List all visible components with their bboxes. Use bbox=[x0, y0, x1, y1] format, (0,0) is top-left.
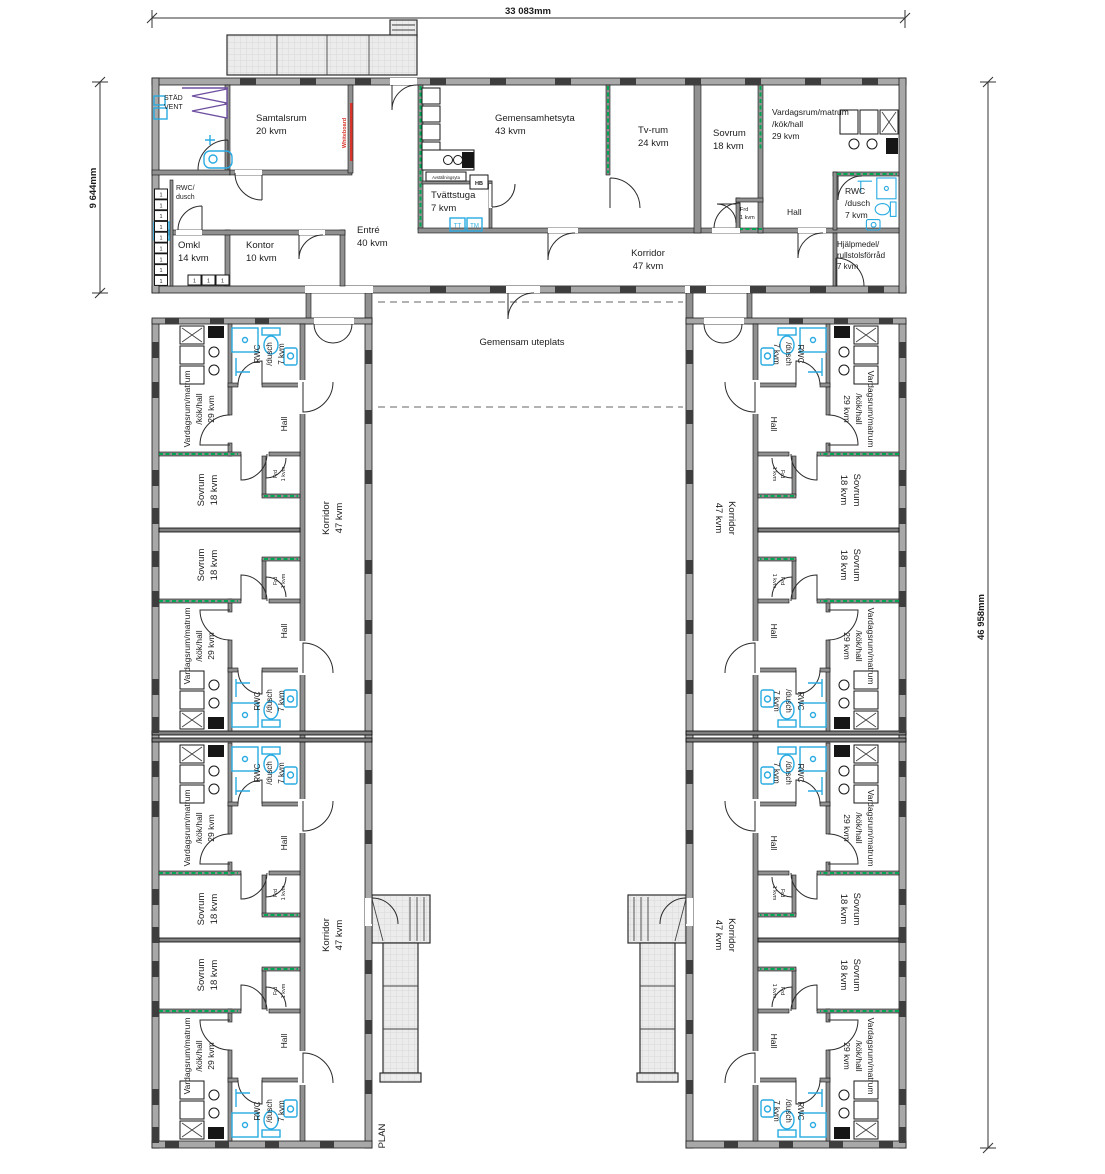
room-frd-top-label: Frd bbox=[740, 207, 748, 213]
whiteboard-label: Whiteboard bbox=[342, 118, 348, 148]
room-vardagsrum-top-label: Vardagsrum/matrum bbox=[772, 107, 849, 117]
room-sovrum-label: Sovrum bbox=[851, 474, 862, 507]
room-sovrum-label: Sovrum bbox=[196, 959, 207, 992]
apartment-R-743: Vardagsrum/matrum/kök/hall29 kvmRWC/dusc… bbox=[725, 743, 899, 925]
window-marker bbox=[240, 78, 256, 85]
wall bbox=[826, 387, 830, 415]
room-kontor-label: Kontor bbox=[246, 240, 274, 251]
room-rwc-label2: /dusch bbox=[784, 1099, 793, 1123]
room-vardagsrum-area: 29 kvm bbox=[842, 632, 852, 659]
window-marker bbox=[724, 1141, 738, 1148]
window-marker bbox=[152, 801, 159, 817]
room-sovrum-label: Sovrum bbox=[196, 893, 207, 926]
wall bbox=[262, 1078, 300, 1082]
wall bbox=[758, 668, 796, 672]
window-marker bbox=[255, 318, 269, 324]
hb-appliance-label: HB bbox=[475, 181, 483, 187]
wall bbox=[820, 668, 830, 672]
room-vardagsrum-top-area: 29 kvm bbox=[772, 131, 799, 141]
window-marker bbox=[686, 410, 693, 424]
stair-step-number: 1 bbox=[159, 203, 162, 209]
room-rwc-entre-label: RWC/ bbox=[176, 185, 195, 192]
door-gap bbox=[752, 799, 760, 833]
room-vardagsrum-area: 29 kvm bbox=[842, 814, 852, 841]
room-vardagsrum-area: 29 kvm bbox=[842, 1042, 852, 1069]
room-rwc-area: 7 kvm bbox=[277, 690, 286, 712]
window-marker bbox=[152, 1001, 159, 1017]
room-gemensamhetsyta-label: Gemensamhetsyta bbox=[495, 113, 575, 124]
door-arc bbox=[303, 643, 333, 673]
room-vardagsrum-label: Vardagsrum/matrum bbox=[866, 1018, 876, 1095]
room-sovrum-top-area: 18 kvm bbox=[713, 141, 744, 152]
window-marker bbox=[686, 1080, 693, 1094]
window-marker bbox=[152, 382, 159, 398]
room-hall-label: Hall bbox=[769, 417, 779, 432]
window-marker bbox=[789, 318, 803, 324]
room-rwc-label2: /dusch bbox=[784, 689, 793, 713]
room-vardagsrum-label: Vardagsrum/matrum bbox=[866, 790, 876, 867]
room-vardagsrum-label: Vardagsrum/matrum bbox=[182, 1018, 192, 1095]
avstallningsyta-label: Avställningsyta bbox=[432, 175, 461, 180]
room-sovrum-area: 18 kvm bbox=[209, 894, 220, 925]
window-marker bbox=[899, 717, 906, 733]
room-sovrum-area: 18 kvm bbox=[209, 960, 220, 991]
room-rwc-area: 7 kvm bbox=[772, 762, 781, 784]
apartment-L-533: Vardagsrum/matrum/kök/hall29 kvmRWC/dusc… bbox=[159, 549, 333, 731]
wall bbox=[228, 640, 232, 668]
room-sovrum-label: Sovrum bbox=[196, 474, 207, 507]
room-kontor-area: 10 kvm bbox=[246, 253, 277, 264]
apartment-R-943: Vardagsrum/matrum/kök/hall29 kvmRWC/dusc… bbox=[725, 959, 899, 1141]
room-sovrum-area: 18 kvm bbox=[209, 550, 220, 581]
room-vardagsrum-area: 29 kvm bbox=[206, 1042, 216, 1069]
stair-step-number: 1 bbox=[159, 247, 162, 253]
room-hall-top-label: Hall bbox=[787, 207, 802, 217]
window-marker bbox=[899, 470, 906, 486]
room-hjalpmedel-label: Hjälpmedel/ bbox=[837, 240, 880, 249]
window-marker bbox=[365, 1080, 372, 1094]
room-hall-label: Hall bbox=[279, 1034, 289, 1049]
window-marker bbox=[265, 1141, 279, 1148]
window-marker bbox=[320, 1141, 334, 1148]
tm-appliance-label: TM bbox=[470, 224, 479, 230]
window-marker bbox=[152, 679, 159, 695]
wall bbox=[826, 806, 830, 834]
door-arc bbox=[725, 643, 755, 673]
stair-step-number: 1 bbox=[159, 193, 162, 199]
room-samtalsrum-label: Samtalsrum bbox=[256, 113, 307, 124]
window-marker bbox=[620, 286, 636, 293]
window-marker bbox=[899, 551, 906, 567]
stair-step-number: 1 bbox=[159, 257, 162, 263]
wall bbox=[228, 387, 232, 415]
door-arc bbox=[238, 670, 262, 694]
room-vardagsrum-label: Vardagsrum/matrum bbox=[182, 790, 192, 867]
room-frd-top-area: 1 kvm bbox=[740, 215, 755, 221]
room-rwc-label: RWC bbox=[796, 345, 805, 364]
stair-step-number: 1 bbox=[159, 214, 162, 220]
window-marker bbox=[365, 770, 372, 784]
room-rwc-label2: /dusch bbox=[265, 342, 274, 366]
window-marker bbox=[365, 350, 372, 364]
door-arc bbox=[303, 801, 333, 831]
room-rwc-top-area: 7 kvm bbox=[845, 210, 868, 220]
room-hall-label: Hall bbox=[769, 1034, 779, 1049]
window-marker bbox=[686, 680, 693, 694]
door-gap bbox=[298, 641, 306, 675]
window-marker bbox=[152, 508, 159, 524]
window-marker bbox=[899, 889, 906, 905]
window-marker bbox=[152, 1089, 159, 1105]
room-rwc-label: RWC bbox=[796, 692, 805, 711]
room-korridor-right2-label: Korridor bbox=[726, 918, 737, 952]
window-marker bbox=[620, 78, 636, 85]
room-frd-label: Frd bbox=[273, 470, 279, 478]
room-stad-vent-label2: VENT bbox=[164, 104, 183, 111]
room-vardagsrum-label2: /kök/hall bbox=[194, 812, 204, 843]
window-marker bbox=[365, 1020, 372, 1034]
room-frd-label: Frd bbox=[273, 987, 279, 995]
wall bbox=[228, 802, 238, 806]
room-korridor-left1-label: Korridor bbox=[321, 501, 332, 535]
window-marker bbox=[152, 889, 159, 905]
window-marker bbox=[152, 927, 159, 943]
room-sovrum-label: Sovrum bbox=[196, 549, 207, 582]
window-marker bbox=[152, 470, 159, 486]
window-marker bbox=[686, 830, 693, 844]
room-vardagsrum-label2: /kök/hall bbox=[854, 812, 864, 843]
window-marker bbox=[686, 1020, 693, 1034]
window-marker bbox=[750, 286, 766, 293]
room-frd-label: Frd bbox=[779, 987, 785, 995]
floor-plan-page: 33 083mm 9 644mm 46 958mm Gemensam utepl… bbox=[0, 0, 1105, 1174]
window-marker bbox=[365, 470, 372, 484]
window-marker bbox=[899, 679, 906, 695]
tt-appliance-label: TT bbox=[454, 224, 462, 230]
dimension-right-label: 46 958mm bbox=[976, 594, 987, 640]
room-hall-label: Hall bbox=[279, 417, 289, 432]
window-marker bbox=[300, 78, 316, 85]
wall bbox=[269, 599, 300, 603]
entrance-deck-north bbox=[227, 20, 417, 75]
wall bbox=[820, 1078, 830, 1082]
window-marker bbox=[365, 620, 372, 634]
window-marker bbox=[899, 961, 906, 977]
door-arc bbox=[796, 780, 820, 804]
room-korridor-left2-label: Korridor bbox=[321, 918, 332, 952]
room-rwc-label2: /dusch bbox=[265, 1099, 274, 1123]
door-arc bbox=[725, 382, 755, 412]
room-rwc-label2: /dusch bbox=[784, 761, 793, 785]
window-marker bbox=[165, 318, 179, 324]
room-tvattstuga-area: 7 kvm bbox=[431, 203, 456, 214]
door-gap bbox=[752, 380, 760, 414]
stair-step-number: 1 bbox=[193, 279, 196, 285]
stair-step-number: 1 bbox=[159, 279, 162, 285]
room-vardagsrum-label2: /kök/hall bbox=[854, 393, 864, 424]
window-marker bbox=[686, 470, 693, 484]
window-marker bbox=[829, 1141, 843, 1148]
room-frd-area: 1 kvm bbox=[771, 886, 777, 901]
stair-step-number: 1 bbox=[159, 268, 162, 274]
room-rwc-top-label2: /dusch bbox=[845, 198, 870, 208]
window-marker bbox=[879, 318, 893, 324]
wall bbox=[826, 640, 830, 668]
room-vardagsrum-area: 29 kvm bbox=[842, 395, 852, 422]
courtyard: Gemensam uteplats bbox=[378, 302, 683, 407]
room-rwc-top-label: RWC bbox=[845, 186, 865, 196]
room-frd-area: 1 kvm bbox=[281, 983, 287, 998]
wall bbox=[262, 383, 300, 387]
window-marker bbox=[686, 620, 693, 634]
room-korridor-right2-area: 47 kvm bbox=[713, 920, 724, 951]
wall bbox=[758, 871, 789, 875]
window-marker bbox=[879, 1141, 893, 1148]
stair-step-number: 1 bbox=[159, 236, 162, 242]
room-rwc-area: 7 kvm bbox=[772, 1100, 781, 1122]
room-hall-label: Hall bbox=[769, 836, 779, 851]
floor-plan-drawing: 33 083mm 9 644mm 46 958mm Gemensam utepl… bbox=[0, 0, 1105, 1174]
room-frd-label: Frd bbox=[273, 577, 279, 585]
room-vardagsrum-area: 29 kvm bbox=[206, 814, 216, 841]
door-arc bbox=[725, 801, 755, 831]
room-korridor-right1-label: Korridor bbox=[726, 501, 737, 535]
room-rwc-label2: /dusch bbox=[265, 761, 274, 785]
room-tvrum-area: 24 kvm bbox=[638, 138, 669, 149]
top-building: STÄD VENT RWC/ dusch Samtalsrum 20 kvm W… bbox=[152, 78, 906, 324]
apartment-R-324: Vardagsrum/matrum/kök/hall29 kvmRWC/dusc… bbox=[725, 324, 899, 506]
apartment-L-324: Vardagsrum/matrum/kök/hall29 kvmRWC/dusc… bbox=[159, 324, 333, 506]
wall bbox=[826, 1050, 830, 1078]
apartment-R-533: Vardagsrum/matrum/kök/hall29 kvmRWC/dusc… bbox=[725, 549, 899, 731]
room-vardagsrum-top-label2: /kök/hall bbox=[772, 119, 803, 129]
room-frd-area: 1 kvm bbox=[771, 984, 777, 999]
room-vardagsrum-label: Vardagsrum/matrum bbox=[866, 608, 876, 685]
door-arc bbox=[796, 670, 820, 694]
room-frd-label: Frd bbox=[779, 889, 785, 897]
window-marker bbox=[805, 78, 821, 85]
window-marker bbox=[355, 78, 371, 85]
room-rwc-area: 7 kvm bbox=[277, 343, 286, 365]
window-marker bbox=[686, 770, 693, 784]
room-rwc-label: RWC bbox=[796, 1102, 805, 1121]
room-frd-area: 1 kvm bbox=[771, 574, 777, 589]
window-marker bbox=[810, 286, 826, 293]
window-marker bbox=[834, 318, 848, 324]
door-gap bbox=[752, 641, 760, 675]
window-marker bbox=[685, 78, 701, 85]
door-arc bbox=[725, 1053, 755, 1083]
door-arc bbox=[303, 382, 333, 412]
window-marker bbox=[430, 78, 446, 85]
window-marker bbox=[365, 410, 372, 424]
wall bbox=[758, 383, 796, 387]
room-tvrum-label: Tv-rum bbox=[638, 125, 668, 136]
room-rwc-label: RWC bbox=[253, 344, 262, 363]
room-entre-area: 40 kvm bbox=[357, 238, 388, 249]
window-marker bbox=[490, 286, 506, 293]
wall bbox=[228, 1050, 232, 1078]
room-vardagsrum-area: 29 kvm bbox=[206, 395, 216, 422]
room-vardagsrum-label2: /kök/hall bbox=[194, 1040, 204, 1071]
dimension-top-label: 33 083mm bbox=[505, 6, 551, 17]
room-sovrum-top-label: Sovrum bbox=[713, 128, 746, 139]
whiteboard-marker bbox=[350, 103, 353, 161]
window-marker bbox=[899, 1001, 906, 1017]
door-gap bbox=[298, 799, 306, 833]
wall bbox=[269, 871, 300, 875]
window-marker bbox=[899, 1127, 906, 1143]
room-sovrum-area: 18 kvm bbox=[838, 960, 849, 991]
room-omkl-label: Omkl bbox=[178, 240, 200, 251]
dimension-right: 46 958mm bbox=[976, 77, 996, 1153]
room-frd-label: Frd bbox=[779, 470, 785, 478]
room-frd-area: 1 kvm bbox=[281, 573, 287, 588]
room-omkl-area: 14 kvm bbox=[178, 253, 209, 264]
window-marker bbox=[490, 78, 506, 85]
room-hall-label: Hall bbox=[279, 624, 289, 639]
dimension-left: 9 644mm bbox=[88, 77, 108, 298]
courtyard-label: Gemensam uteplats bbox=[479, 337, 564, 348]
room-hall-label: Hall bbox=[769, 624, 779, 639]
window-marker bbox=[745, 78, 761, 85]
door-arc bbox=[238, 780, 262, 804]
room-rwc-label: RWC bbox=[253, 691, 262, 710]
stair-step-number: 1 bbox=[159, 225, 162, 231]
room-frd-area: 1 kvm bbox=[771, 467, 777, 482]
room-frd-label: Frd bbox=[273, 889, 279, 897]
apartment-L-943: Vardagsrum/matrum/kök/hall29 kvmRWC/dusc… bbox=[159, 959, 333, 1141]
window-marker bbox=[365, 830, 372, 844]
window-marker bbox=[899, 927, 906, 943]
stair-step-number: 1 bbox=[207, 279, 210, 285]
wall bbox=[758, 1009, 789, 1013]
wall bbox=[820, 383, 830, 387]
room-hjalpmedel-label2: rullstolsförråd bbox=[837, 251, 885, 260]
room-sovrum-area: 18 kvm bbox=[838, 475, 849, 506]
room-stad-vent-label: STÄD bbox=[164, 94, 183, 102]
room-hjalpmedel-area: 7 kvm bbox=[837, 262, 859, 271]
room-rwc-area: 7 kvm bbox=[772, 343, 781, 365]
dimension-left-label: 9 644mm bbox=[88, 168, 99, 209]
door-gap bbox=[752, 1051, 760, 1085]
window-marker bbox=[899, 342, 906, 358]
room-samtalsrum-area: 20 kvm bbox=[256, 126, 287, 137]
room-frd-area: 1 kvm bbox=[281, 466, 287, 481]
wall bbox=[228, 383, 238, 387]
window-marker bbox=[365, 680, 372, 694]
room-vardagsrum-label2: /kök/hall bbox=[854, 630, 864, 661]
wall bbox=[228, 668, 238, 672]
room-korridor-left1-area: 47 kvm bbox=[334, 503, 345, 534]
window-marker bbox=[899, 1089, 906, 1105]
window-marker bbox=[555, 286, 571, 293]
window-marker bbox=[152, 961, 159, 977]
wall bbox=[262, 802, 300, 806]
wall bbox=[228, 1078, 238, 1082]
plan-title: PLAN bbox=[377, 1123, 388, 1148]
window-marker bbox=[152, 591, 159, 607]
window-marker bbox=[899, 761, 906, 777]
door-arc bbox=[238, 1080, 262, 1104]
window-marker bbox=[899, 508, 906, 524]
window-marker bbox=[215, 1141, 229, 1148]
window-marker bbox=[365, 560, 372, 574]
apartment-L-743: Vardagsrum/matrum/kök/hall29 kvmRWC/dusc… bbox=[159, 743, 333, 925]
window-marker bbox=[430, 286, 446, 293]
window-marker bbox=[555, 78, 571, 85]
window-marker bbox=[165, 1141, 179, 1148]
stair-step-number: 1 bbox=[221, 279, 224, 285]
window-marker bbox=[152, 761, 159, 777]
room-sovrum-label: Sovrum bbox=[851, 959, 862, 992]
room-vardagsrum-label: Vardagsrum/matrum bbox=[182, 608, 192, 685]
room-gemensamhetsyta-area: 43 kvm bbox=[495, 126, 526, 137]
room-vardagsrum-label2: /kök/hall bbox=[194, 630, 204, 661]
dimension-top: 33 083mm bbox=[147, 6, 910, 28]
room-korridor-left2-area: 47 kvm bbox=[334, 920, 345, 951]
window-marker bbox=[365, 960, 372, 974]
window-marker bbox=[899, 591, 906, 607]
window-marker bbox=[152, 342, 159, 358]
door-arc bbox=[796, 361, 820, 385]
room-rwc-label: RWC bbox=[253, 763, 262, 782]
room-frd-label: Frd bbox=[779, 577, 785, 585]
window-marker bbox=[690, 286, 706, 293]
wall bbox=[758, 599, 789, 603]
room-vardagsrum-label: Vardagsrum/matrum bbox=[182, 371, 192, 448]
room-vardagsrum-label2: /kök/hall bbox=[194, 393, 204, 424]
room-rwc-label: RWC bbox=[796, 764, 805, 783]
courtyard-ramp-left bbox=[372, 895, 430, 1082]
room-korridor-top-label: Korridor bbox=[631, 248, 665, 259]
room-rwc-area: 7 kvm bbox=[277, 1100, 286, 1122]
room-rwc-label2: /dusch bbox=[265, 689, 274, 713]
wall bbox=[269, 452, 300, 456]
window-marker bbox=[152, 1127, 159, 1143]
wall bbox=[269, 1009, 300, 1013]
door-gap bbox=[298, 380, 306, 414]
window-marker bbox=[899, 801, 906, 817]
wall bbox=[228, 806, 232, 834]
window-marker bbox=[779, 1141, 793, 1148]
wall bbox=[758, 802, 796, 806]
room-korridor-top-area: 47 kvm bbox=[633, 261, 664, 272]
door-arc bbox=[238, 361, 262, 385]
room-rwc-label2: /dusch bbox=[784, 342, 793, 366]
wall bbox=[820, 802, 830, 806]
staircase: 111111111111 bbox=[155, 189, 230, 285]
room-entre-label: Entré bbox=[357, 225, 380, 236]
window-marker bbox=[152, 717, 159, 733]
window-marker bbox=[868, 286, 884, 293]
room-sovrum-label: Sovrum bbox=[851, 893, 862, 926]
room-tvattstuga-label: Tvättstuga bbox=[431, 190, 476, 201]
door-gap bbox=[298, 1051, 306, 1085]
room-rwc-entre-label2: dusch bbox=[176, 194, 195, 201]
window-marker bbox=[686, 960, 693, 974]
room-korridor-right1-area: 47 kvm bbox=[713, 503, 724, 534]
window-marker bbox=[152, 551, 159, 567]
door-arc bbox=[303, 1053, 333, 1083]
window-marker bbox=[686, 350, 693, 364]
wall bbox=[758, 1078, 796, 1082]
window-marker bbox=[862, 78, 878, 85]
wall bbox=[262, 668, 300, 672]
window-marker bbox=[899, 382, 906, 398]
room-rwc-label: RWC bbox=[253, 1101, 262, 1120]
room-rwc-area: 7 kvm bbox=[772, 690, 781, 712]
